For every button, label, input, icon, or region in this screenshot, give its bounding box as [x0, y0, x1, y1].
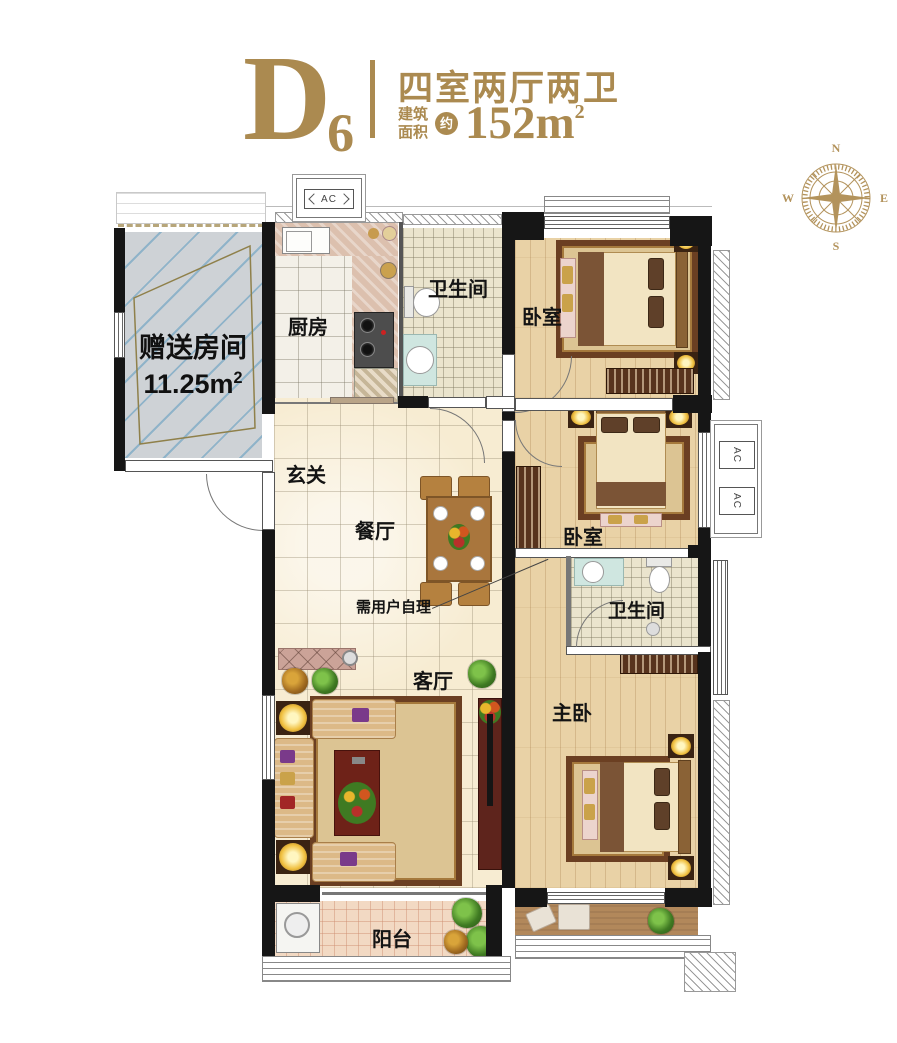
stove-knob: [381, 330, 386, 335]
wall: [262, 222, 275, 414]
bed-pillow: [654, 768, 670, 796]
terrace-railing: [515, 935, 711, 959]
unit-code: D6: [243, 38, 354, 160]
bed-throw: [578, 252, 604, 346]
floor-lamp: [276, 701, 310, 735]
annotation-self-provided: 需用户自理: [356, 600, 431, 615]
sofa-pillow: [280, 796, 295, 809]
place-setting: [470, 556, 485, 571]
area-value: 152m2: [465, 100, 585, 147]
bench-cushion: [562, 266, 573, 284]
wall: [398, 396, 428, 408]
bath-sink: [406, 346, 434, 374]
bed-pillow: [654, 802, 670, 830]
bench-cushion: [562, 294, 573, 312]
bed-pillow: [633, 417, 660, 433]
window-sill: [713, 700, 730, 905]
entry-door-opening: [262, 472, 275, 530]
balcony-railing: [262, 956, 511, 982]
wall: [665, 888, 712, 907]
entry-door-arc: [206, 474, 263, 531]
terrace-plant: [648, 908, 674, 934]
table-centerpiece: [448, 524, 470, 550]
bench-cushion: [584, 778, 595, 794]
kitchen-bowl: [380, 262, 397, 279]
window: [698, 432, 711, 528]
stove-burner: [360, 342, 375, 357]
area-label: 建筑 面积: [398, 106, 428, 141]
bench-cushion: [608, 515, 622, 524]
stove-burner: [360, 318, 375, 333]
window: [544, 216, 670, 229]
room-label-dining: 餐厅: [355, 522, 395, 542]
wall-white: [566, 646, 711, 655]
room-label-bath-master: 卫生间: [608, 602, 665, 621]
wall-white: [515, 548, 698, 558]
ac-platform-top: AC: [296, 178, 362, 218]
compass-east: E: [880, 191, 888, 205]
window-sill-lines: [544, 196, 670, 214]
window-sill: [713, 250, 730, 400]
room-label-balcony: 阳台: [372, 930, 412, 950]
unit-letter: D: [243, 38, 331, 160]
window: [547, 892, 665, 904]
partition-wall: [566, 556, 571, 648]
potted-plant: [282, 668, 308, 694]
partition-wall: [399, 222, 403, 396]
wall: [502, 240, 515, 354]
bed-throw: [600, 762, 624, 852]
room-label-bedroom-mid: 卧室: [563, 528, 603, 548]
bench-cushion: [634, 515, 648, 524]
chevron-right-icon: [338, 193, 349, 204]
bedroom-top-dresser: [606, 368, 694, 394]
kitchen-jar: [368, 228, 379, 239]
ac-unit: AC: [719, 441, 755, 469]
coffee-remote: [352, 757, 365, 764]
potted-plant: [468, 660, 496, 688]
room-label-entry: 玄关: [286, 466, 326, 486]
unit-number: 6: [327, 106, 354, 160]
bath-master-sink: [582, 561, 604, 583]
bed-headboard: [676, 250, 688, 348]
kitchen-sink-basin: [286, 231, 312, 252]
wall: [698, 244, 711, 404]
wall: [698, 556, 711, 652]
bed-pillow: [648, 258, 664, 290]
compass-west: W: [782, 191, 794, 205]
terrace-cushion: [558, 904, 590, 930]
potted-plant: [312, 668, 338, 694]
wall: [502, 412, 515, 420]
wall: [515, 888, 547, 907]
wall: [670, 216, 712, 246]
wall: [698, 404, 711, 432]
sofa-pillow: [340, 852, 357, 866]
bed-throw: [596, 482, 666, 506]
room-label-bedroom-top: 卧室: [522, 308, 562, 328]
floorplan-page: D6 四室两厅两卫 建筑 面积 约 152m2 N E S: [0, 0, 897, 1043]
kitchen-jar: [382, 226, 397, 241]
ac-platform-side: AC AC: [714, 424, 758, 534]
wall-white: [486, 396, 515, 409]
ac-unit: AC: [304, 189, 354, 209]
room-label-bath-top: 卫生间: [428, 280, 488, 300]
header-divider: [370, 60, 375, 138]
balcony-plant: [452, 898, 482, 928]
wall: [698, 652, 711, 905]
area-row: 建筑 面积 约 152m2: [398, 100, 585, 147]
gift-room-bottom-wall: [125, 460, 273, 472]
balcony-slider: [322, 892, 498, 895]
washer-drum: [284, 912, 310, 938]
toilet-bowl: [649, 566, 670, 593]
wall: [502, 212, 544, 240]
door-opening: [428, 397, 486, 408]
compass-south: S: [833, 239, 840, 252]
room-label-gift: 赠送房间 11.25m2: [130, 330, 256, 403]
wall: [262, 530, 275, 695]
wall-white: [515, 398, 673, 411]
sofa-pillow: [280, 750, 295, 763]
door-opening: [502, 420, 515, 452]
room-label-master: 主卧: [552, 704, 592, 724]
cabinet-decor: [342, 650, 358, 666]
approx-badge: 约: [435, 112, 458, 135]
compass-rose: N E S W: [781, 140, 891, 252]
sofa-pillow: [280, 772, 295, 785]
wall: [262, 892, 275, 958]
floor-lamp: [276, 840, 310, 874]
self-install-wardrobe: [516, 466, 541, 554]
wall: [114, 456, 125, 471]
window: [713, 560, 728, 695]
nightstand-lamp: [668, 856, 694, 880]
wall: [502, 452, 515, 888]
place-setting: [433, 506, 448, 521]
awning-edge: [116, 192, 266, 224]
wall-vent-band: [403, 214, 502, 225]
coffee-bouquet: [338, 782, 376, 824]
room-label-living: 客厅: [413, 672, 453, 692]
wall: [262, 780, 275, 888]
chevron-left-icon: [308, 193, 319, 204]
bed-headboard: [678, 760, 691, 854]
place-setting: [433, 556, 448, 571]
terrace-step: [684, 952, 736, 992]
bed-pillow: [601, 417, 628, 433]
kitchen-stove: [354, 312, 394, 368]
window: [114, 312, 125, 358]
ac-unit: AC: [719, 487, 755, 515]
compass-north: N: [832, 141, 841, 155]
gift-room-open-edge: [118, 224, 264, 227]
bed-pillow: [648, 296, 664, 328]
window: [262, 695, 275, 780]
floor-drain: [646, 622, 660, 636]
sofa-pillow: [352, 708, 369, 722]
room-label-kitchen: 厨房: [288, 318, 328, 338]
tv-screen: [487, 714, 493, 806]
bench-cushion: [584, 804, 595, 820]
balcony-plant: [444, 930, 468, 954]
place-setting: [470, 506, 485, 521]
nightstand-lamp: [668, 734, 694, 758]
sliding-door-leaf: [330, 397, 394, 404]
